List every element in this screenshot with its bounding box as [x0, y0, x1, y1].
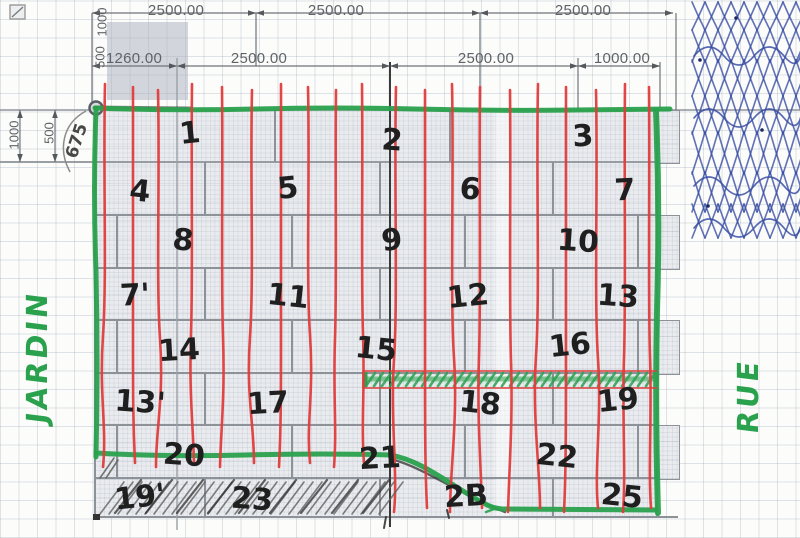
panel-number: 25	[600, 480, 645, 514]
panel-number: 7	[614, 175, 636, 206]
dim-label: 2500.00	[231, 50, 287, 67]
panel-number: 15	[354, 333, 399, 367]
panel-number: 22	[535, 440, 580, 474]
panel-number: 14	[157, 335, 200, 367]
left-dim-label: 500	[42, 122, 57, 144]
panel-number: 17	[246, 388, 289, 420]
panel-number: 2B	[443, 481, 488, 513]
panel-number: 4	[128, 176, 152, 208]
panel-number: 2	[381, 125, 404, 156]
panel-number: 7'	[119, 280, 151, 312]
panel-number: 10	[556, 226, 600, 259]
panel-block-overhang	[657, 425, 680, 480]
zone-label-rue: RUE	[731, 357, 765, 436]
panel-number: 20	[162, 440, 206, 473]
panel-number: 13'	[114, 386, 167, 419]
zone-label-jardin: JARDIN	[20, 289, 54, 426]
left-dim-label: 1000	[7, 121, 22, 150]
panel-block-overhang	[657, 215, 680, 270]
panel-number: 8	[171, 225, 195, 257]
panel-number: 21	[358, 443, 401, 475]
panel-number: 12	[446, 280, 491, 314]
dimension-row-second: 1260.002500.002500.001000.00	[0, 0, 800, 80]
panel-number: 3	[572, 121, 594, 152]
panel-number: 16	[548, 329, 593, 363]
panel-number: 5	[276, 173, 300, 205]
panel-number: 13	[596, 281, 640, 314]
dim-label: 1260.00	[106, 50, 162, 67]
dim-label: 1000.00	[594, 50, 650, 67]
panel-number: 6	[459, 174, 482, 205]
pencil-dimension-675: 675	[62, 121, 92, 161]
scan-crease	[495, 110, 511, 517]
panel-number: 23	[230, 484, 274, 517]
panel-number: 11	[266, 280, 311, 314]
corner-dim-label: 1000	[95, 8, 110, 37]
panel-number: 19'	[113, 480, 167, 515]
panel-number: 19	[596, 384, 641, 418]
corner-dim-label: 500	[93, 46, 108, 68]
panel-number: 9	[380, 225, 404, 257]
panel-block-overhang	[657, 320, 680, 375]
panel-number: 1	[178, 118, 202, 150]
dim-label: 2500.00	[458, 50, 514, 67]
panel-number: 18	[458, 387, 503, 421]
panel-block-overhang	[657, 110, 680, 164]
scanned-plan-sheet: 2500.002500.002500.00 1260.002500.002500…	[0, 0, 800, 538]
